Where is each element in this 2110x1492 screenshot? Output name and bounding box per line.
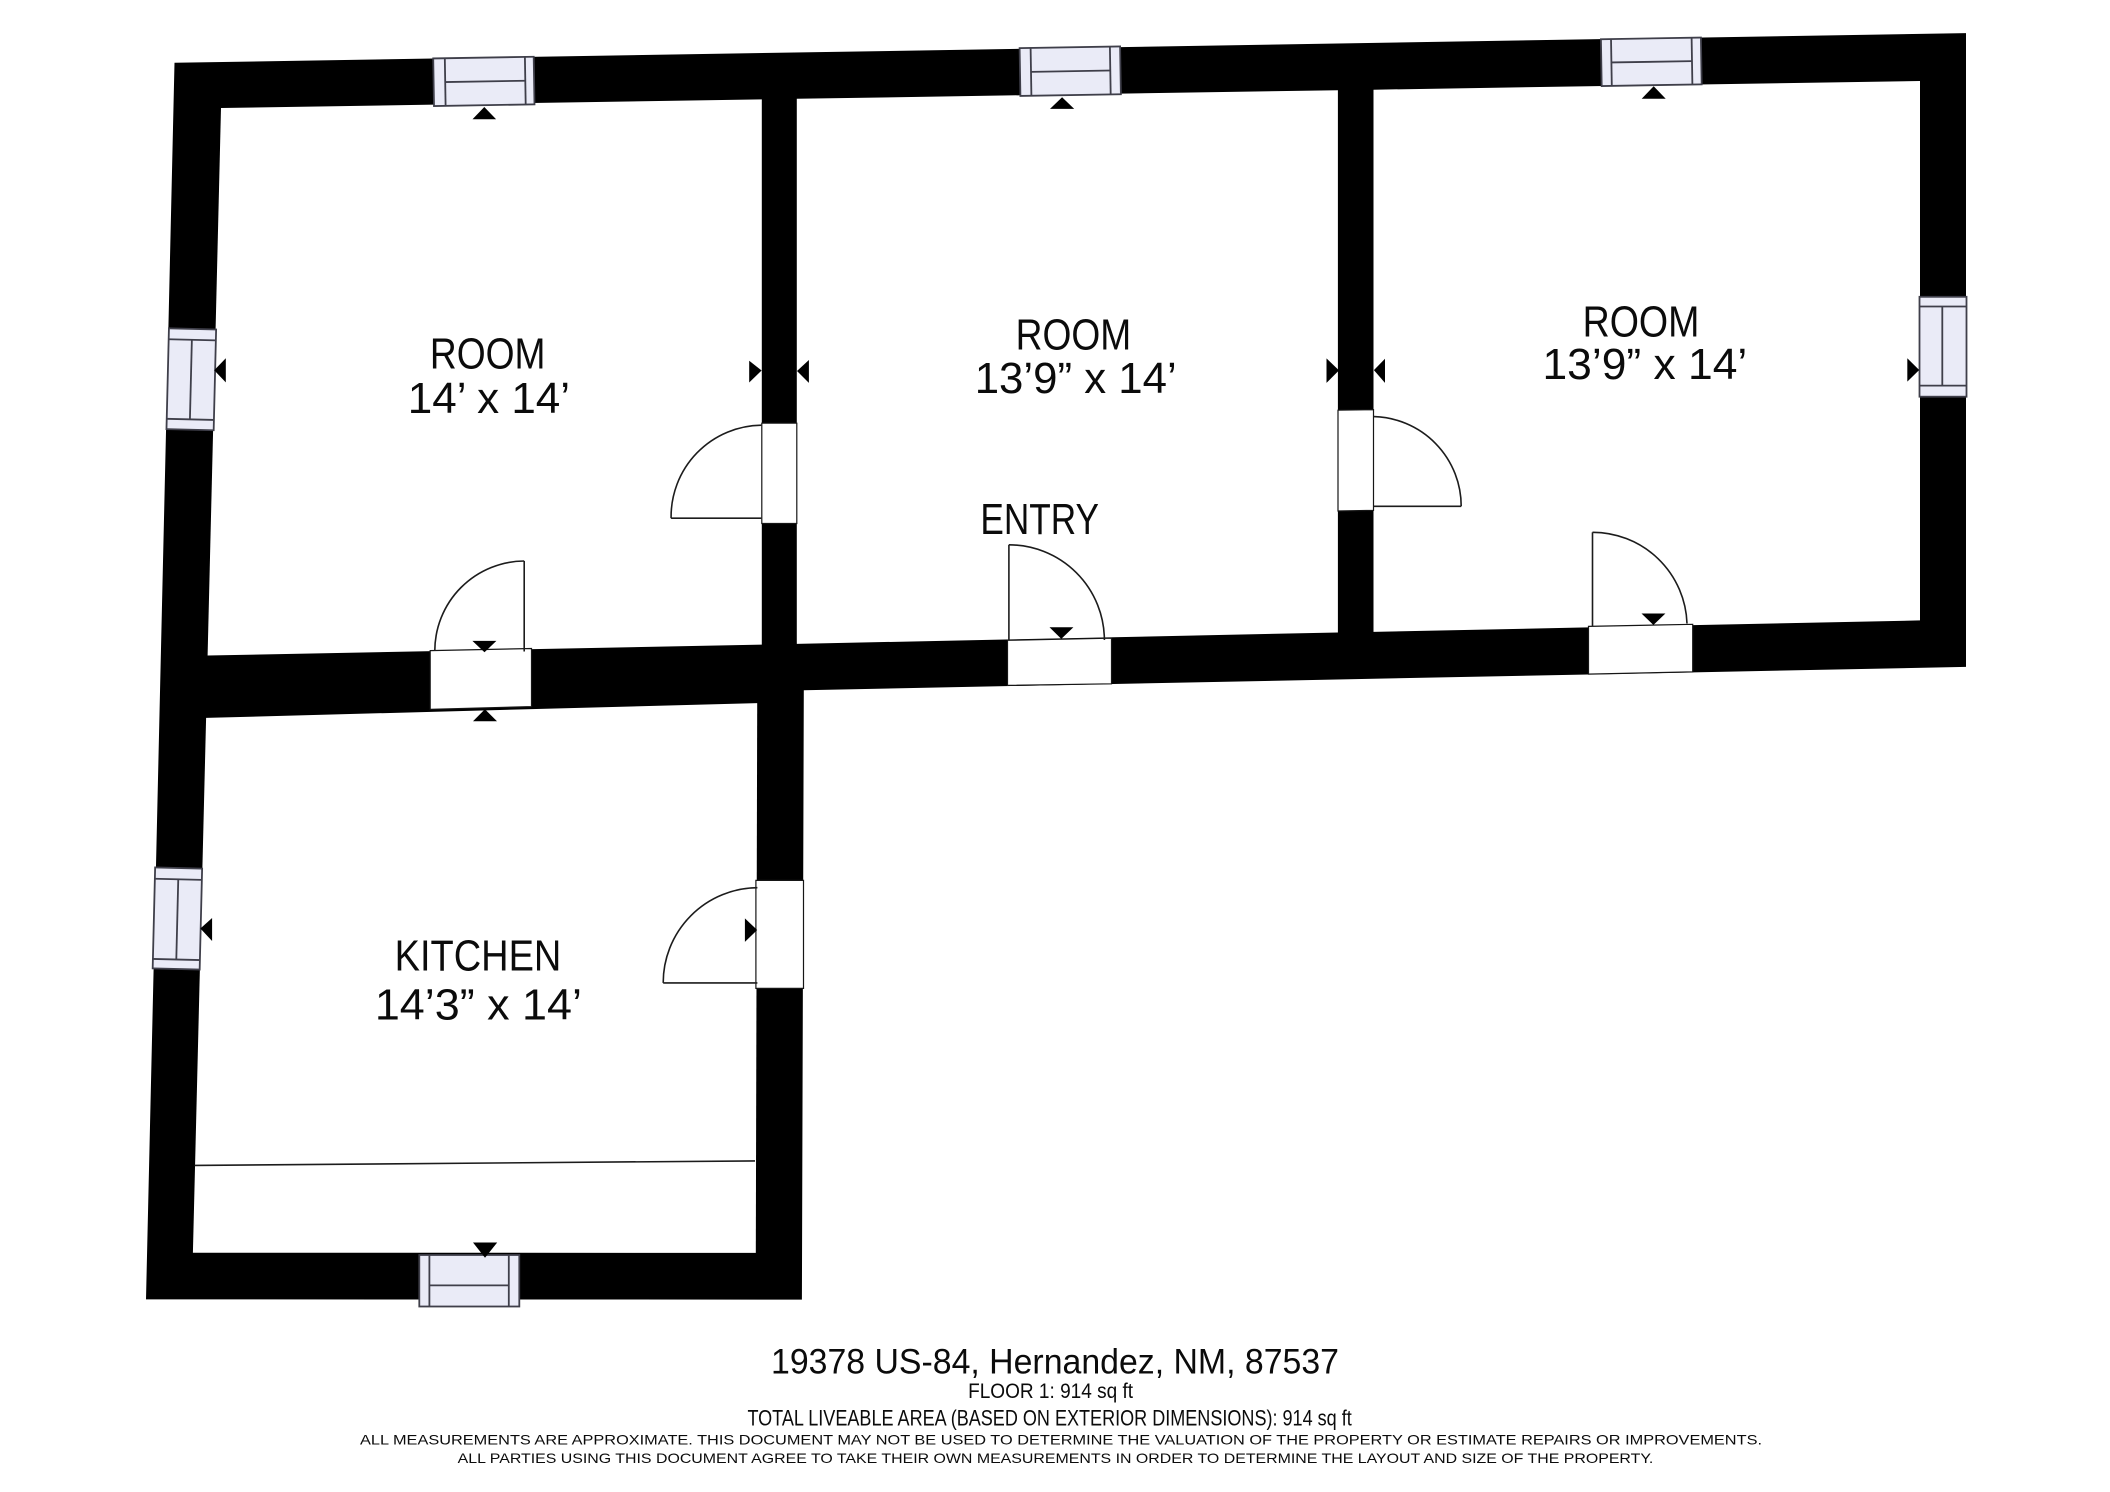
svg-text:ROOM: ROOM — [1016, 311, 1132, 360]
svg-text:ALL PARTIES USING THIS DOCUMEN: ALL PARTIES USING THIS DOCUMENT AGREE TO… — [458, 1450, 1654, 1466]
svg-text:14’ x 14’: 14’ x 14’ — [408, 374, 570, 423]
svg-text:ROOM: ROOM — [430, 330, 546, 379]
svg-text:KITCHEN: KITCHEN — [395, 931, 562, 980]
svg-text:13’9” x 14’: 13’9” x 14’ — [975, 354, 1177, 403]
svg-text:19378 US-84, Hernandez, NM, 87: 19378 US-84, Hernandez, NM, 87537 — [771, 1342, 1339, 1381]
svg-text:14’3” x 14’: 14’3” x 14’ — [375, 981, 582, 1030]
svg-text:TOTAL LIVEABLE AREA (BASED ON: TOTAL LIVEABLE AREA (BASED ON EXTERIOR D… — [747, 1406, 1352, 1431]
svg-text:ALL MEASUREMENTS ARE APPROXIMA: ALL MEASUREMENTS ARE APPROXIMATE. THIS D… — [360, 1431, 1762, 1447]
svg-text:13’9” x 14’: 13’9” x 14’ — [1543, 340, 1748, 389]
svg-text:ENTRY: ENTRY — [980, 495, 1099, 544]
svg-text:FLOOR 1: 914 sq ft: FLOOR 1: 914 sq ft — [968, 1380, 1133, 1403]
